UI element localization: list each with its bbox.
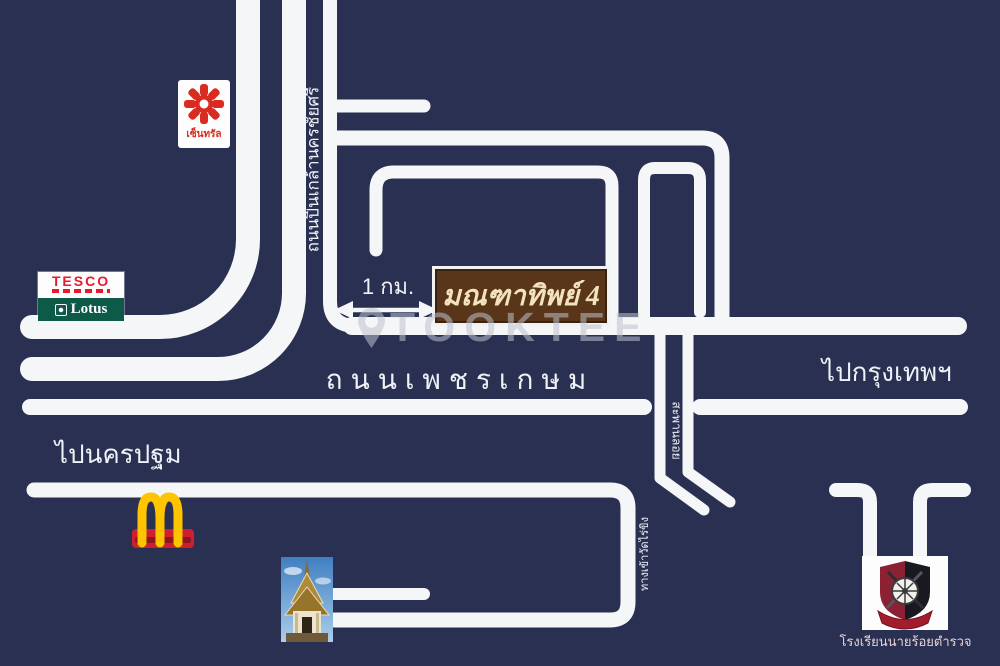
road-label-phetkasem: ถนนเพชรเกษม — [285, 358, 635, 402]
location-pin-icon — [358, 308, 385, 348]
central-starburst-icon — [183, 83, 225, 125]
map-canvas: ถนนปิ่นเกล้านครชัยศรี 1 กม. ถนนเพชรเกษม … — [0, 0, 1000, 666]
central-logo: เซ็นทรัล — [178, 80, 230, 148]
watermark: TOOKTEE — [358, 304, 650, 351]
lotus-label: Lotus — [71, 301, 108, 318]
police-crest-icon — [862, 556, 948, 630]
label-temple-entrance: ทางเข้าวัดไร่ขิง — [635, 479, 653, 629]
mcdonalds-logo — [129, 487, 197, 554]
label-to-bangkok: ไปกรุงเทพฯ — [822, 352, 982, 393]
distance-label: 1 กม. — [348, 269, 428, 304]
golden-arches-icon — [129, 487, 197, 549]
tesco-lotus-logo: TESCO Lotus — [38, 272, 124, 321]
police-academy-crest — [862, 556, 948, 630]
road-lane-rect — [644, 168, 700, 318]
road-label-pinklao: ถนนปิ่นเกล้านครชัยศรี — [300, 20, 327, 320]
central-label: เซ็นทรัล — [178, 130, 230, 140]
lotus-flower-icon — [55, 304, 67, 316]
road-overpass-right — [688, 334, 730, 502]
police-academy-label: โรงเรียนนายร้อยตำรวจ — [828, 631, 983, 652]
watermark-text: TOOKTEE — [390, 304, 650, 351]
road-academy-left — [836, 490, 870, 556]
road-academy-right — [920, 490, 964, 556]
temple-photo — [281, 557, 333, 642]
label-to-nakhon-pathom: ไปนครปฐม — [55, 434, 205, 475]
label-overpass: สะพานลอย — [667, 366, 686, 496]
tesco-label: TESCO — [38, 272, 124, 290]
